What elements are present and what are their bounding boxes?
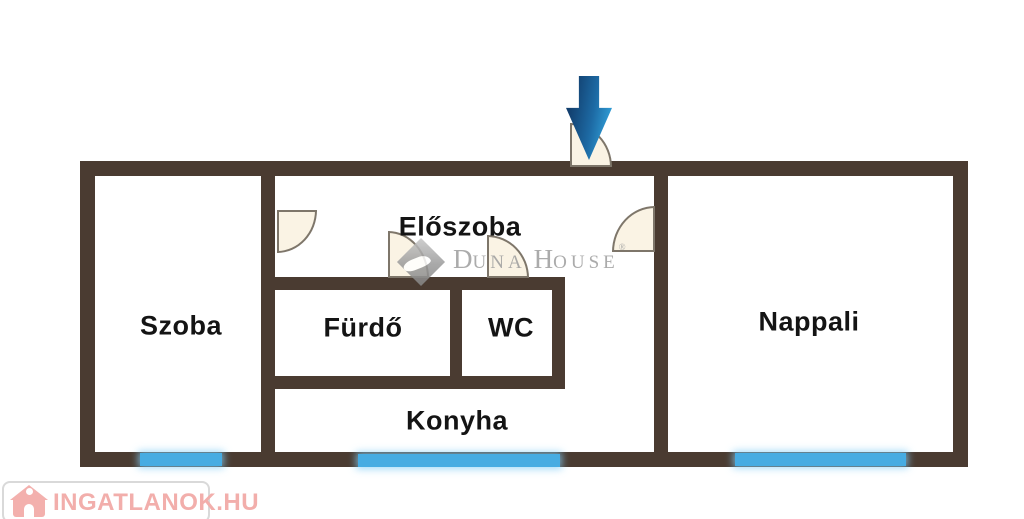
registered-mark: ® [619, 242, 626, 252]
outer-wall-right [953, 161, 968, 467]
watermark-letter: H [534, 244, 554, 274]
room-label-wc: WC [488, 313, 534, 344]
duna-house-watermark: DUNAHOUSE® [395, 236, 626, 288]
nappali-window [735, 453, 906, 466]
ingatlanok-logo-text: INGATLANOK.HU [53, 489, 259, 517]
room-label-furdo: Fürdő [324, 313, 403, 344]
szoba-door [277, 210, 317, 253]
room-label-konyha: Konyha [406, 406, 508, 437]
konyha-window [358, 454, 560, 467]
wall-szoba-divider [261, 176, 275, 452]
floor-plan: DUNAHOUSE® Előszoba Szoba Fürdő WC Nappa… [0, 0, 1024, 519]
outer-wall-top [80, 161, 968, 176]
watermark-letters: UNA [473, 252, 526, 273]
outer-wall-left [80, 161, 95, 467]
room-label-nappali: Nappali [758, 307, 859, 338]
watermark-letters: OUSE [553, 252, 619, 273]
room-label-eloszoba: Előszoba [399, 212, 522, 243]
duna-house-wordmark: DUNAHOUSE® [453, 242, 626, 275]
wall-furdo-wc-divider [450, 277, 462, 389]
wall-nappali-divider [654, 176, 668, 452]
ingatlanok-house-icon [10, 485, 48, 517]
watermark-letter: D [453, 244, 473, 274]
wall-bathroom-bottom [261, 376, 565, 389]
szoba-window [140, 453, 222, 466]
duna-house-diamond-icon [395, 236, 447, 288]
wall-bathroom-right [552, 277, 565, 389]
room-label-szoba: Szoba [140, 311, 222, 342]
